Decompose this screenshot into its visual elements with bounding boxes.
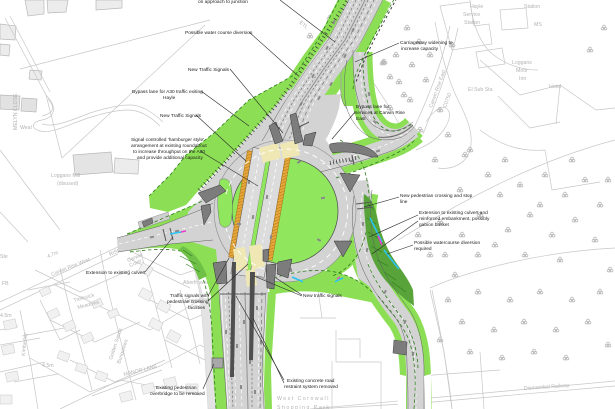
svg-text:Hayle: Hayle bbox=[163, 95, 176, 101]
svg-text:New traffic signals: New traffic signals bbox=[303, 293, 342, 299]
svg-text:New Traffic Signals: New Traffic Signals bbox=[188, 67, 230, 73]
svg-text:Bypass lane for A30 traffic ex: Bypass lane for A30 traffic exiting bbox=[132, 89, 203, 95]
svg-text:East: East bbox=[356, 116, 366, 122]
svg-text:FB: FB bbox=[2, 281, 9, 287]
svg-text:Moor: Moor bbox=[516, 68, 528, 74]
svg-text:overbridge to be removed: overbridge to be removed bbox=[150, 391, 205, 397]
svg-text:New pedestrian crossing and st: New pedestrian crossing and stop bbox=[400, 193, 473, 199]
svg-text:Carriageway widening to: Carriageway widening to bbox=[400, 40, 453, 46]
svg-text:increase capacity: increase capacity bbox=[401, 46, 439, 52]
svg-text:required: required bbox=[414, 246, 432, 252]
svg-text:Service: Service bbox=[463, 12, 480, 18]
svg-text:Station: Station bbox=[464, 20, 480, 26]
svg-text:Existing pedestrian: Existing pedestrian bbox=[156, 385, 197, 391]
svg-text:(disused): (disused) bbox=[57, 181, 79, 187]
svg-text:Loggans: Loggans bbox=[512, 60, 532, 66]
svg-text:Inn: Inn bbox=[519, 76, 526, 82]
svg-text:Traffic signals with: Traffic signals with bbox=[170, 293, 210, 299]
svg-text:Services at Carwin Rise: Services at Carwin Rise bbox=[354, 110, 405, 116]
svg-text:Loggans Mill: Loggans Mill bbox=[51, 173, 80, 179]
svg-text:MELYN CLOSE: MELYN CLOSE bbox=[13, 93, 19, 130]
svg-text:Weal: Weal bbox=[20, 125, 32, 131]
svg-text:MS: MS bbox=[534, 22, 542, 28]
svg-text:facilities: facilities bbox=[188, 305, 206, 311]
svg-text:gabion basket: gabion basket bbox=[419, 222, 450, 228]
svg-text:to increase throughput on the: to increase throughput on the A30 bbox=[133, 149, 205, 155]
svg-text:Ste: Ste bbox=[0, 254, 8, 260]
svg-text:restraint system removed: restraint system removed bbox=[284, 384, 338, 390]
svg-text:Extension to existing culvert: Extension to existing culvert and bbox=[419, 210, 488, 216]
svg-text:4.5m: 4.5m bbox=[0, 313, 12, 319]
svg-text:line: line bbox=[400, 199, 408, 205]
svg-text:on approach to junction: on approach to junction bbox=[198, 0, 248, 5]
svg-text:Station: Station bbox=[524, 4, 540, 10]
svg-text:Possible watercourse diversion: Possible watercourse diversion bbox=[414, 240, 480, 246]
svg-text:West Cornwall: West Cornwall bbox=[277, 396, 330, 402]
svg-text:Bypass lane for: Bypass lane for bbox=[356, 104, 389, 110]
svg-text:Hotel: Hotel bbox=[549, 84, 561, 90]
svg-text:4.5m: 4.5m bbox=[42, 363, 54, 369]
svg-text:pedestrian crossing: pedestrian crossing bbox=[167, 299, 209, 305]
svg-text:Possible water course diversio: Possible water course diversion bbox=[185, 30, 253, 36]
svg-text:El Sub Sta: El Sub Sta bbox=[468, 87, 493, 93]
svg-text:Signal controlled 'hamburger s: Signal controlled 'hamburger style' bbox=[131, 137, 204, 143]
svg-text:New Traffic Signals: New Traffic Signals bbox=[160, 113, 202, 119]
svg-text:and provide additional capacit: and provide additional capacity bbox=[137, 155, 203, 161]
svg-text:Aberfrawen: Aberfrawen bbox=[183, 280, 210, 286]
svg-text:Existing concrete road: Existing concrete road bbox=[287, 378, 335, 384]
svg-text:Hayle: Hayle bbox=[470, 4, 483, 10]
svg-text:reinforced embankment, possibl: reinforced embankment, possibly bbox=[419, 216, 490, 222]
svg-text:Shopping Park: Shopping Park bbox=[277, 405, 331, 409]
svg-text:Extension to existing culvert: Extension to existing culvert bbox=[86, 270, 146, 276]
svg-text:arrangement at existing rounda: arrangement at existing roundabout bbox=[131, 143, 207, 149]
